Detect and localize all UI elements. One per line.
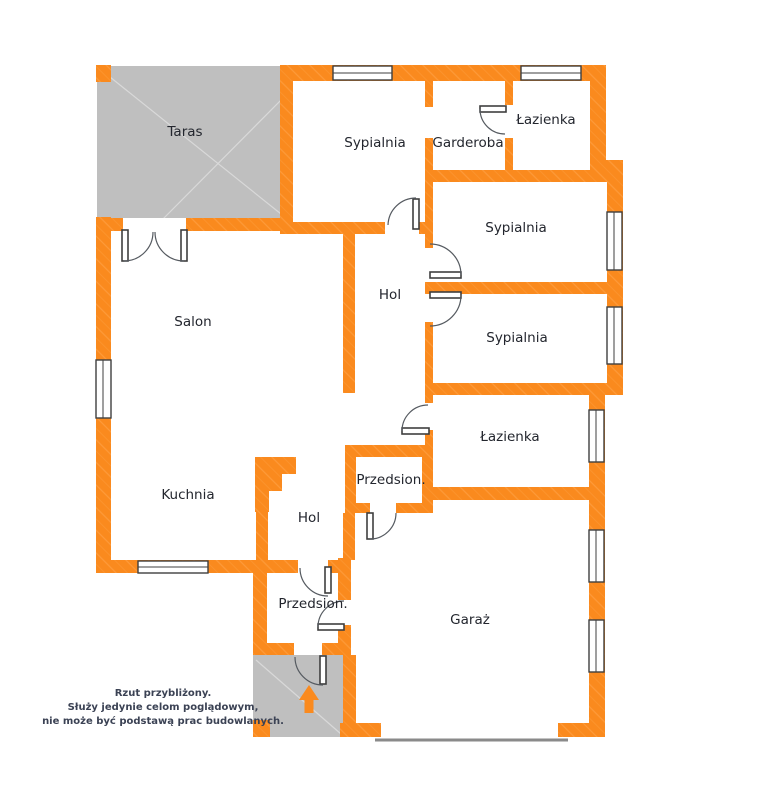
terrace-area bbox=[97, 66, 293, 225]
room-label-lazienka-top: Łazienka bbox=[515, 112, 575, 128]
window bbox=[521, 66, 581, 80]
room-label-kuchnia: Kuchnia bbox=[161, 487, 214, 503]
window bbox=[589, 410, 604, 462]
room-label-lazienka-lower: Łazienka bbox=[479, 429, 539, 445]
window bbox=[333, 66, 392, 80]
window bbox=[607, 212, 622, 270]
floor-plan-drawing: Taras Sypialnia Garderoba Łazienka Sypia… bbox=[0, 0, 768, 799]
room-label-hol-upper: Hol bbox=[379, 287, 401, 303]
room-label-garaz: Garaż bbox=[450, 612, 490, 628]
room-label-taras: Taras bbox=[166, 124, 202, 140]
disclaimer-line-2: Służy jedynie celom poglądowym, bbox=[68, 702, 259, 713]
room-label-sypialnia-mid: Sypialnia bbox=[485, 220, 546, 236]
room-label-sypialnia-low: Sypialnia bbox=[486, 330, 547, 346]
room-label-sypialnia-top: Sypialnia bbox=[344, 135, 405, 151]
room-label-garderoba: Garderoba bbox=[432, 135, 503, 151]
room-label-przedsionek-upper: Przedsion. bbox=[356, 472, 425, 488]
window bbox=[589, 620, 604, 672]
room-label-hol-lower: Hol bbox=[298, 510, 320, 526]
disclaimer-line-1: Rzut przybliżony. bbox=[115, 688, 212, 699]
window bbox=[589, 530, 604, 582]
room-label-salon: Salon bbox=[174, 314, 211, 330]
terrace-door-opening bbox=[123, 218, 186, 231]
window bbox=[96, 360, 111, 418]
floor-plan-page: Taras Sypialnia Garderoba Łazienka Sypia… bbox=[0, 0, 768, 799]
window bbox=[138, 561, 208, 573]
room-label-przedsionek-lower: Przedsion. bbox=[278, 596, 347, 612]
window bbox=[607, 307, 622, 364]
disclaimer-line-3: nie może być podstawą prac budowlanych. bbox=[42, 715, 284, 727]
